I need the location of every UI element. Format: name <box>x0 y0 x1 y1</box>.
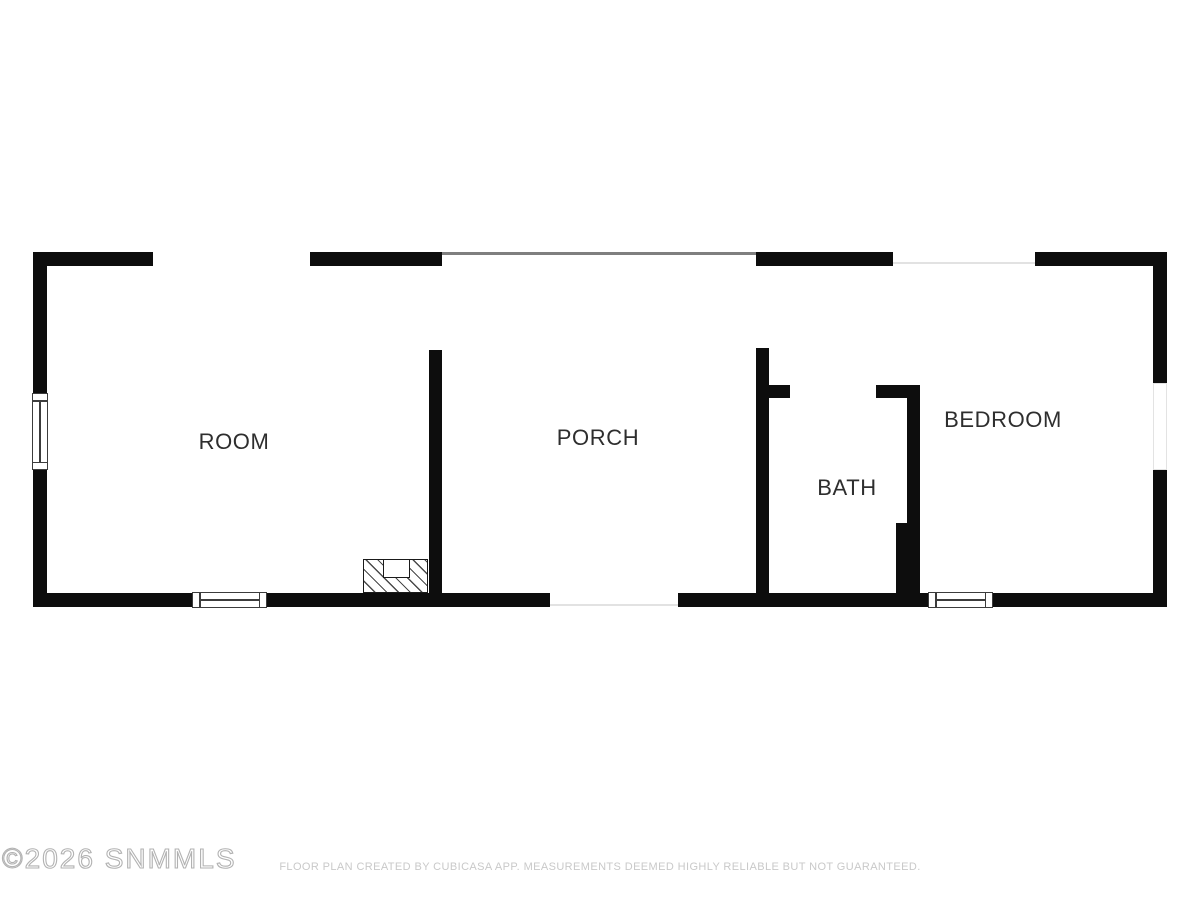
room-left-wall-upper <box>33 266 47 393</box>
bath-top-wall-left-stub <box>769 385 790 398</box>
bedroom-bottom-window <box>928 592 993 608</box>
room-left-window <box>32 393 48 470</box>
bath-top-wall-right <box>876 385 920 398</box>
porch-right-wall <box>756 348 769 593</box>
bottom-wall-bedroom <box>993 593 1167 607</box>
room-label-porch: PORCH <box>557 427 639 449</box>
room-top-wall-left <box>33 252 153 266</box>
bath-right-wall-lower <box>896 523 920 593</box>
bottom-wall-room-right <box>267 593 550 607</box>
bedroom-top-opening-line <box>893 262 1035 264</box>
window-center-line <box>39 401 41 462</box>
window-center-line <box>200 599 259 601</box>
bedroom-right-wall-upper <box>1153 266 1167 383</box>
room-label-bath: BATH <box>817 477 876 499</box>
window-center-line <box>936 599 985 601</box>
room-label-room: ROOM <box>199 431 270 453</box>
bedroom-top-wall-left <box>756 252 893 266</box>
room-top-wall-right <box>310 252 442 266</box>
room-left-wall-lower <box>33 470 47 607</box>
bedroom-right-wall-lower <box>1153 470 1167 607</box>
bottom-wall-bath <box>678 593 928 607</box>
disclaimer-text: FLOOR PLAN CREATED BY CUBICASA APP. MEAS… <box>0 861 1200 873</box>
fireplace-hatch <box>363 559 428 593</box>
porch-bottom-opening-line <box>550 604 678 606</box>
room-label-bedroom: BEDROOM <box>944 409 1062 431</box>
floor-plan: ROOM PORCH BATH BEDROOM <box>0 0 1200 900</box>
porch-top-edge-line <box>442 252 756 255</box>
bedroom-right-wall-opening <box>1153 383 1167 470</box>
porch-left-wall <box>429 350 442 593</box>
bedroom-top-wall-right <box>1035 252 1167 266</box>
room-bottom-window <box>192 592 267 608</box>
bottom-wall-room-left <box>33 593 192 607</box>
bath-right-wall-upper <box>907 398 920 523</box>
fireplace-notch <box>383 559 410 578</box>
